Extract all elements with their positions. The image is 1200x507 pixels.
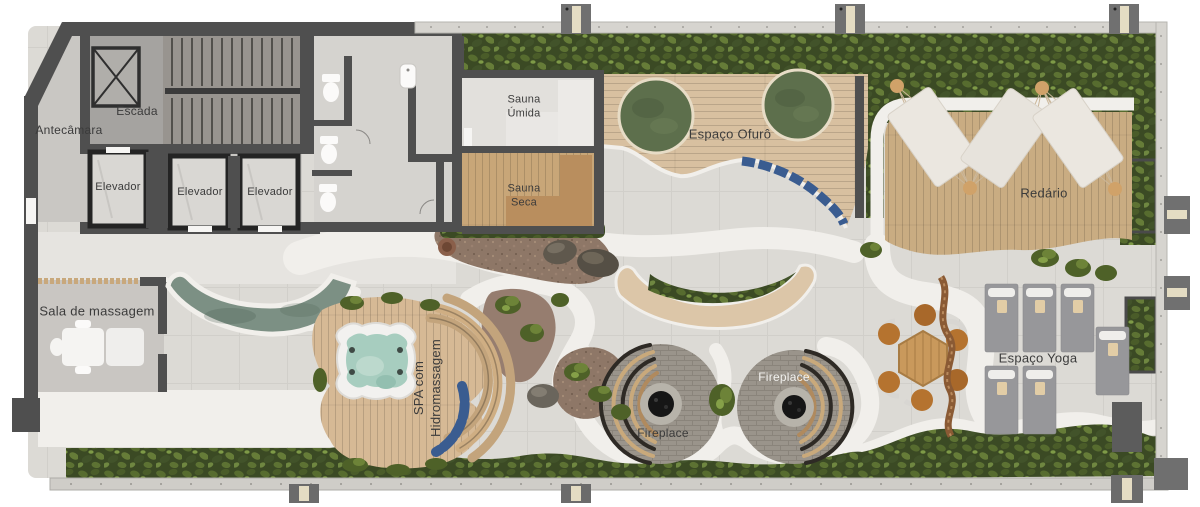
redario-deck xyxy=(877,79,1134,255)
spa-hot-tub xyxy=(336,323,415,399)
fire-pit-upper xyxy=(774,387,814,427)
elevator-2 xyxy=(170,156,228,232)
toilet xyxy=(322,74,340,102)
ofuro-tub-left xyxy=(619,79,693,153)
floor-plan-canvas: Antecâmara Escada Elevador Elevador Elev… xyxy=(0,0,1200,507)
bathrooms xyxy=(310,22,464,232)
saunas xyxy=(462,70,604,234)
massage-room xyxy=(36,277,167,392)
ofuro-tub-right xyxy=(763,70,833,140)
elevator-1 xyxy=(90,147,146,226)
toilet xyxy=(320,136,338,164)
elevator-3 xyxy=(240,156,298,232)
toilet xyxy=(319,184,337,212)
fire-pit-lower xyxy=(640,383,682,425)
floor-plan-drawing xyxy=(0,0,1200,507)
elevator-shaft-x xyxy=(93,48,139,106)
sink xyxy=(400,64,416,88)
